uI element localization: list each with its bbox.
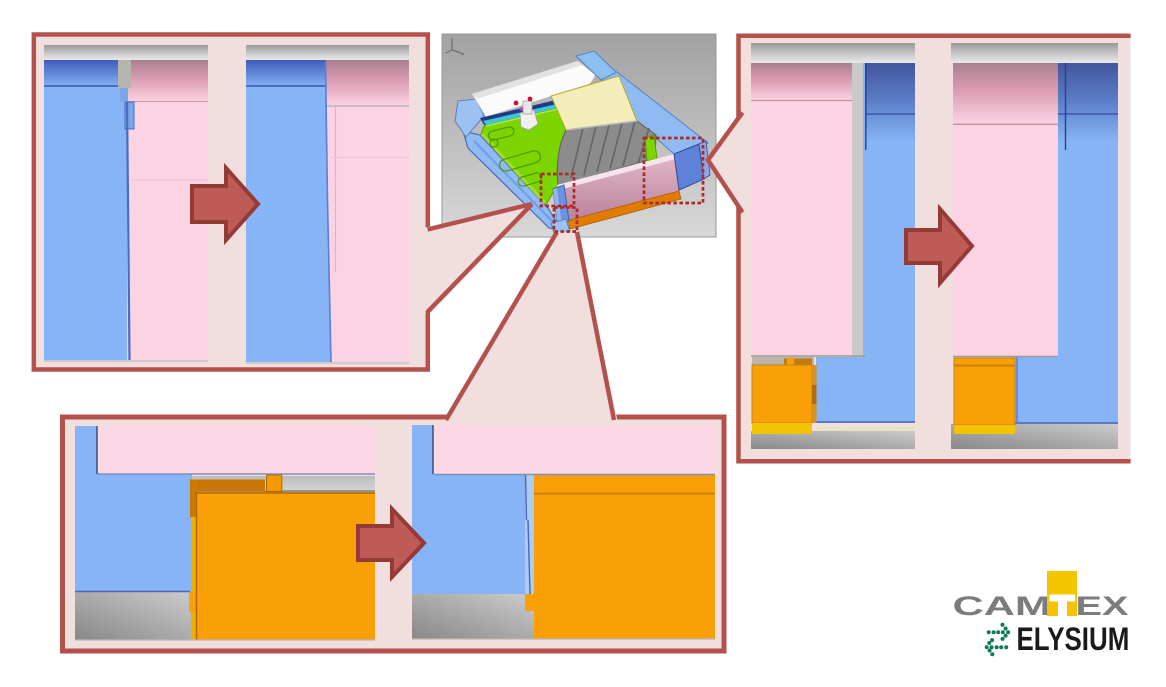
svg-text:ELYSIUM: ELYSIUM (1017, 623, 1130, 658)
svg-text:CAM: CAM (953, 590, 1051, 621)
svg-text:EX: EX (1076, 591, 1129, 621)
